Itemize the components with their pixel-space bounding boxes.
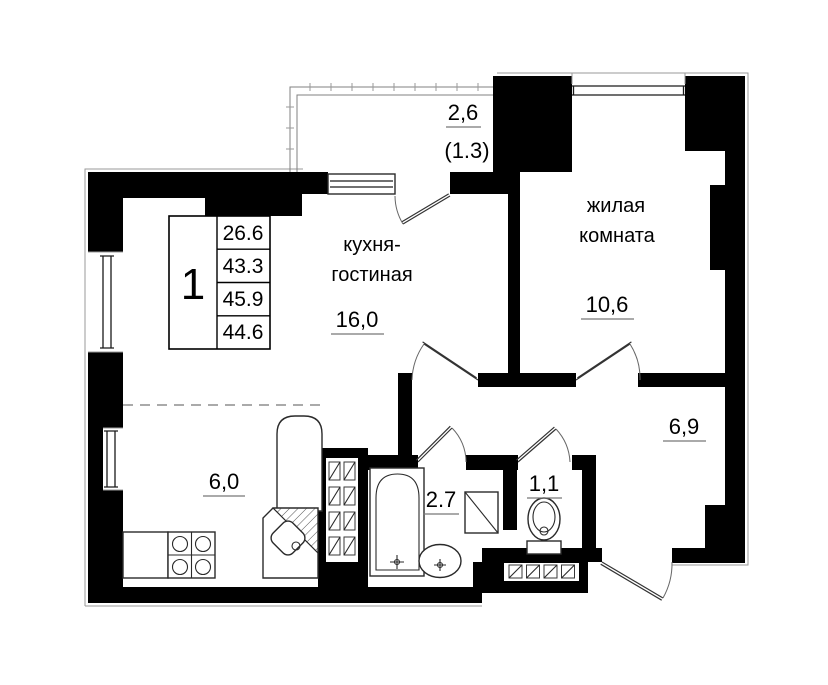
wall-segment [508, 172, 520, 375]
table-area-value: 26.6 [223, 222, 264, 245]
wall-segment [478, 373, 576, 387]
wall-segment [582, 455, 596, 562]
unit-number: 1 [181, 260, 205, 309]
kitchen-counter-icon [123, 532, 168, 578]
room-area-reduced: (1.3) [444, 138, 489, 163]
wall-segment [466, 455, 518, 470]
washing-machine-icon [465, 492, 498, 533]
wall-segment [503, 470, 517, 530]
wall-segment [88, 352, 123, 428]
corner-sink-icon [263, 508, 318, 578]
room-area: 6,9 [669, 414, 700, 439]
label-balcony: 2,6 (1.3) [444, 100, 489, 163]
unit-info-table: 1 26.6 43.3 45.9 44.6 [169, 216, 270, 349]
room-area: 6,0 [209, 469, 240, 494]
wall-segment [725, 151, 745, 563]
label-kitchen-zone: 6,0 [203, 469, 245, 496]
toilet-icon [527, 498, 561, 554]
wall-segment [672, 548, 745, 563]
window-left-lower [103, 428, 123, 490]
table-area-value: 43.3 [223, 255, 264, 278]
label-wc: 1,1 [527, 471, 562, 498]
label-living-room: жилая комната 10,6 [579, 195, 656, 319]
floor-plan-page: 1 26.6 43.3 45.9 44.6 кухня- гостиная 16… [0, 0, 828, 685]
door-entrance [601, 562, 672, 600]
wall-segment [88, 172, 123, 252]
label-kitchen-living: кухня- гостиная 16,0 [331, 234, 413, 334]
stove-icon [168, 532, 215, 578]
table-area-value: 45.9 [223, 288, 264, 311]
label-hall: 6,9 [663, 414, 706, 441]
window-left-upper [88, 252, 123, 352]
wall-segment [205, 198, 302, 216]
label-bathroom: 2.7 [423, 487, 459, 514]
room-area: 2.7 [426, 487, 457, 512]
fridge-icon [277, 416, 322, 511]
window-living-room [572, 73, 685, 95]
room-area: 2,6 [448, 100, 479, 125]
wall-segment [685, 76, 745, 151]
room-name: жилая [587, 195, 645, 217]
wall-segment [493, 76, 572, 172]
door-living-room [576, 342, 640, 380]
floor-plan-drawing: 1 26.6 43.3 45.9 44.6 кухня- гостиная 16… [0, 0, 828, 685]
vent-niche-icon [473, 562, 588, 593]
wall-segment [284, 172, 328, 194]
wash-basin-icon [419, 545, 461, 578]
wall-segment [88, 428, 103, 490]
wall-segment [398, 373, 412, 460]
room-name: кухня- [343, 234, 401, 256]
room-area: 16,0 [336, 307, 379, 332]
door-wc [516, 427, 570, 462]
bathtub-icon [370, 468, 424, 576]
room-name: гостиная [331, 264, 412, 286]
room-area: 1,1 [529, 471, 560, 496]
wall-pilaster [710, 185, 725, 270]
wall-segment [88, 587, 482, 603]
wall-segment [638, 373, 745, 387]
wall-segment [450, 172, 512, 194]
door-kitchen-living [412, 342, 478, 380]
door-balcony [395, 194, 450, 224]
ventilation-shaft-icon [318, 448, 368, 603]
room-area: 10,6 [586, 292, 629, 317]
window-balcony [328, 174, 395, 194]
room-name: комната [579, 225, 656, 247]
wall-segment [88, 490, 123, 603]
door-bathroom [416, 426, 466, 462]
table-area-value: 44.6 [223, 321, 264, 344]
